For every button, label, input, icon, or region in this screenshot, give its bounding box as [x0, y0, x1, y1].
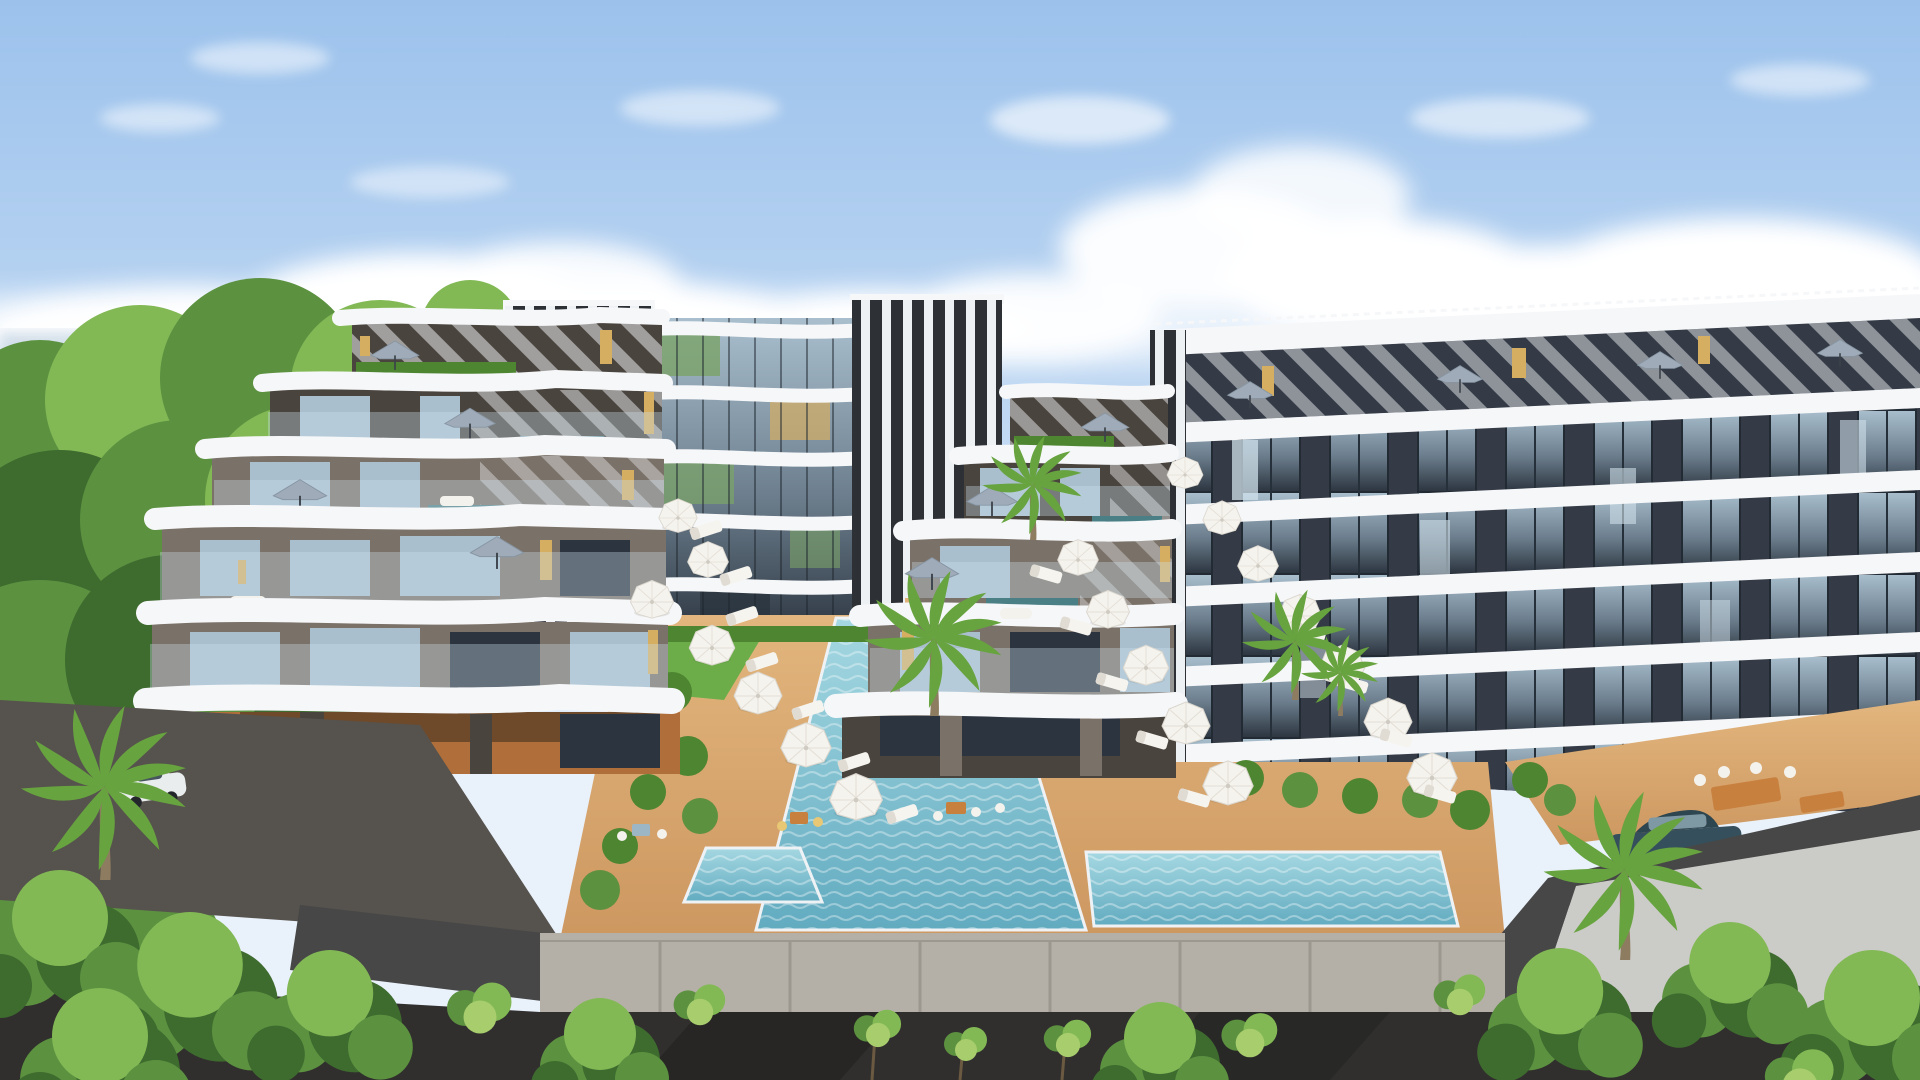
terrace-sofa: [1000, 608, 1032, 619]
architectural-render: 3D architectural rendering of a modern l…: [0, 0, 1920, 1080]
pool-wing: [1086, 852, 1458, 926]
terrace-sofa: [440, 496, 474, 506]
kids-pool: [684, 848, 822, 902]
render-canvas: 3D architectural rendering of a modern l…: [0, 0, 1920, 1080]
